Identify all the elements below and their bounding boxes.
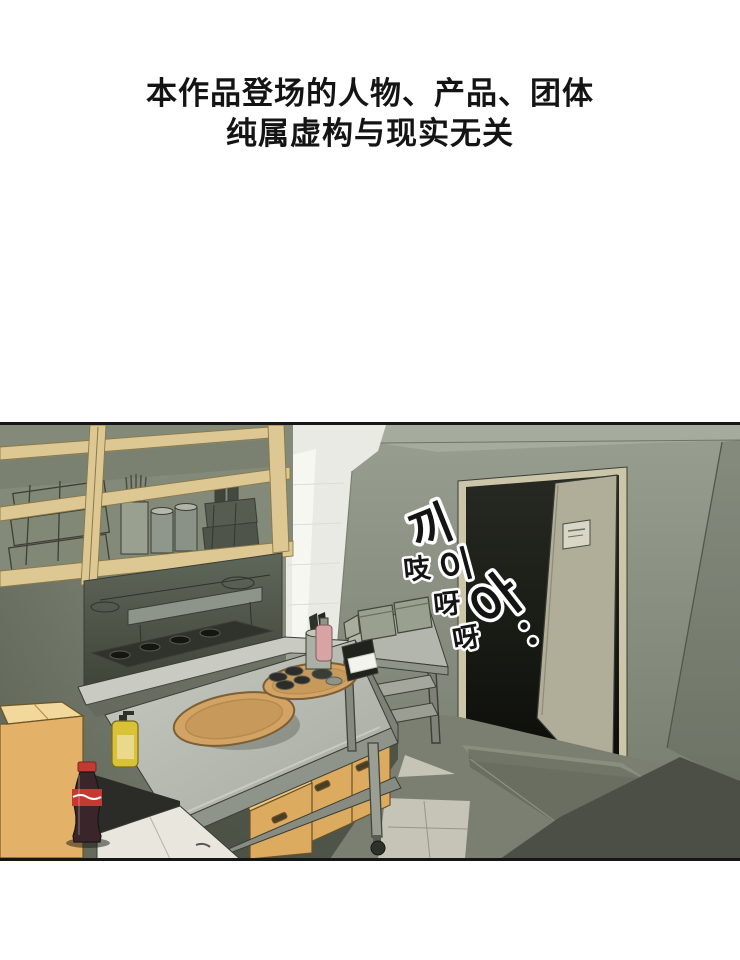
webtoon-page: 本作品登场的人物、产品、团体 纯属虚构与现实无关 xyxy=(0,0,740,960)
sfx-chinese-3: 呀 xyxy=(450,621,482,656)
cola-body xyxy=(73,772,101,842)
comic-panel: 끼 吱 이 呀 아 呀 xyxy=(0,422,740,861)
soap-label xyxy=(117,735,134,759)
door-sign xyxy=(563,520,590,549)
sfx-chinese-2: 呀 xyxy=(432,588,462,622)
disclaimer-text: 本作品登场的人物、产品、团体 纯属虚构与现实无关 xyxy=(0,74,740,154)
cup-body xyxy=(121,502,148,554)
kitchen-scene: 끼 吱 이 呀 아 呀 xyxy=(0,425,740,858)
disclaimer-line-2: 纯属虚构与现实无关 xyxy=(0,114,740,154)
cola-cap xyxy=(78,762,96,772)
box-side xyxy=(0,716,83,858)
cardboard-box xyxy=(0,702,83,858)
napkin-holder xyxy=(342,639,378,681)
disclaimer-line-1: 本作品登场的人物、产品、团体 xyxy=(0,74,740,114)
sfx-chinese-1: 吱 xyxy=(402,553,433,587)
